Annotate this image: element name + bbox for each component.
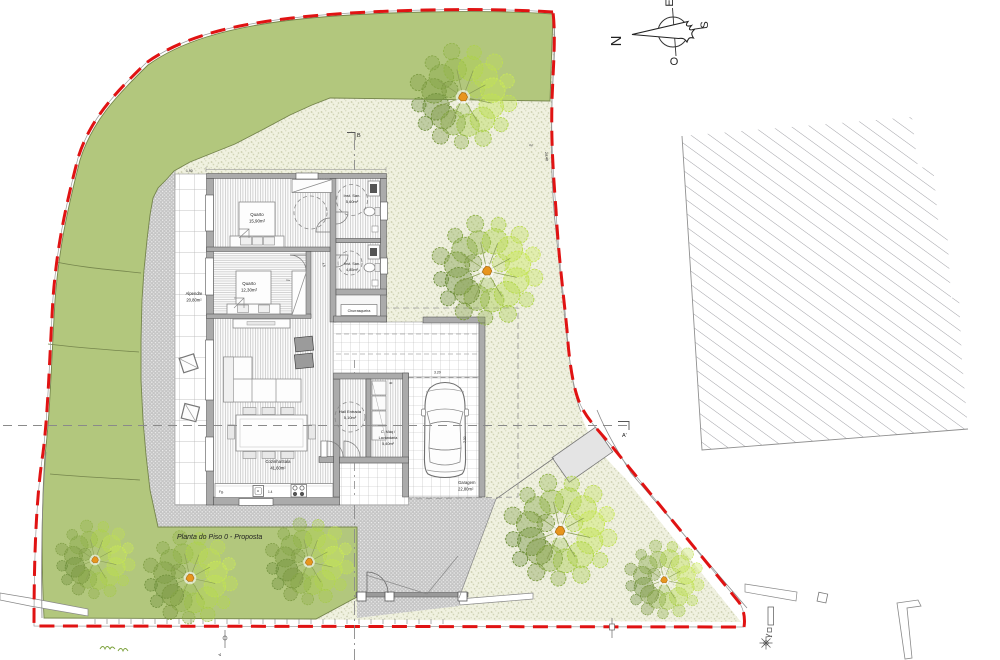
svg-text:Churrasqueira: Churrasqueira [348,309,371,313]
svg-text:40: 40 [389,381,393,385]
svg-text:Lavandaria: Lavandaria [379,436,399,440]
svg-text:Fg.: Fg. [219,490,224,494]
svg-text:Inst. San.: Inst. San. [344,193,361,198]
svg-text:5,40m²: 5,40m² [382,442,395,446]
svg-text:A: A [217,653,222,656]
svg-text:S: S [699,21,711,28]
svg-text:A': A' [622,433,627,439]
svg-text:4,85m²: 4,85m² [346,268,359,272]
svg-text:E: E [664,0,676,7]
svg-text:22,80m²: 22,80m² [458,486,474,491]
svg-text:Hall Entrada: Hall Entrada [339,409,362,414]
svg-text:1.4: 1.4 [268,490,273,494]
svg-text:41,60m²: 41,60m² [270,465,286,470]
svg-text:7.30: 7.30 [463,436,467,443]
svg-text:O: O [670,56,679,68]
svg-text:C. Máq /: C. Máq / [381,430,396,434]
svg-text:15,90m²: 15,90m² [249,219,266,224]
svg-text:12,30m²: 12,30m² [241,288,258,293]
svg-text:Quarto: Quarto [250,212,264,217]
svg-text:Planta do Piso 0 - Proposta: Planta do Piso 0 - Proposta [177,534,262,541]
svg-text:3.20: 3.20 [434,371,441,375]
svg-text:Alpendre: Alpendre [186,291,203,296]
svg-text:5,60m²: 5,60m² [346,199,359,204]
svg-text:Inst. San.: Inst. San. [344,262,360,266]
svg-text:Quarto: Quarto [242,281,256,286]
svg-text:5,10m²: 5,10m² [344,415,357,420]
svg-text:B: B [357,133,361,139]
svg-text:Garagem: Garagem [458,480,476,485]
svg-text:N: N [608,36,625,47]
svg-text:20,80m²: 20,80m² [186,297,202,302]
svg-text:1.90: 1.90 [186,169,193,173]
svg-text:24,40: 24,40 [544,152,549,161]
svg-text:Cozinha/Sala: Cozinha/Sala [266,459,292,464]
